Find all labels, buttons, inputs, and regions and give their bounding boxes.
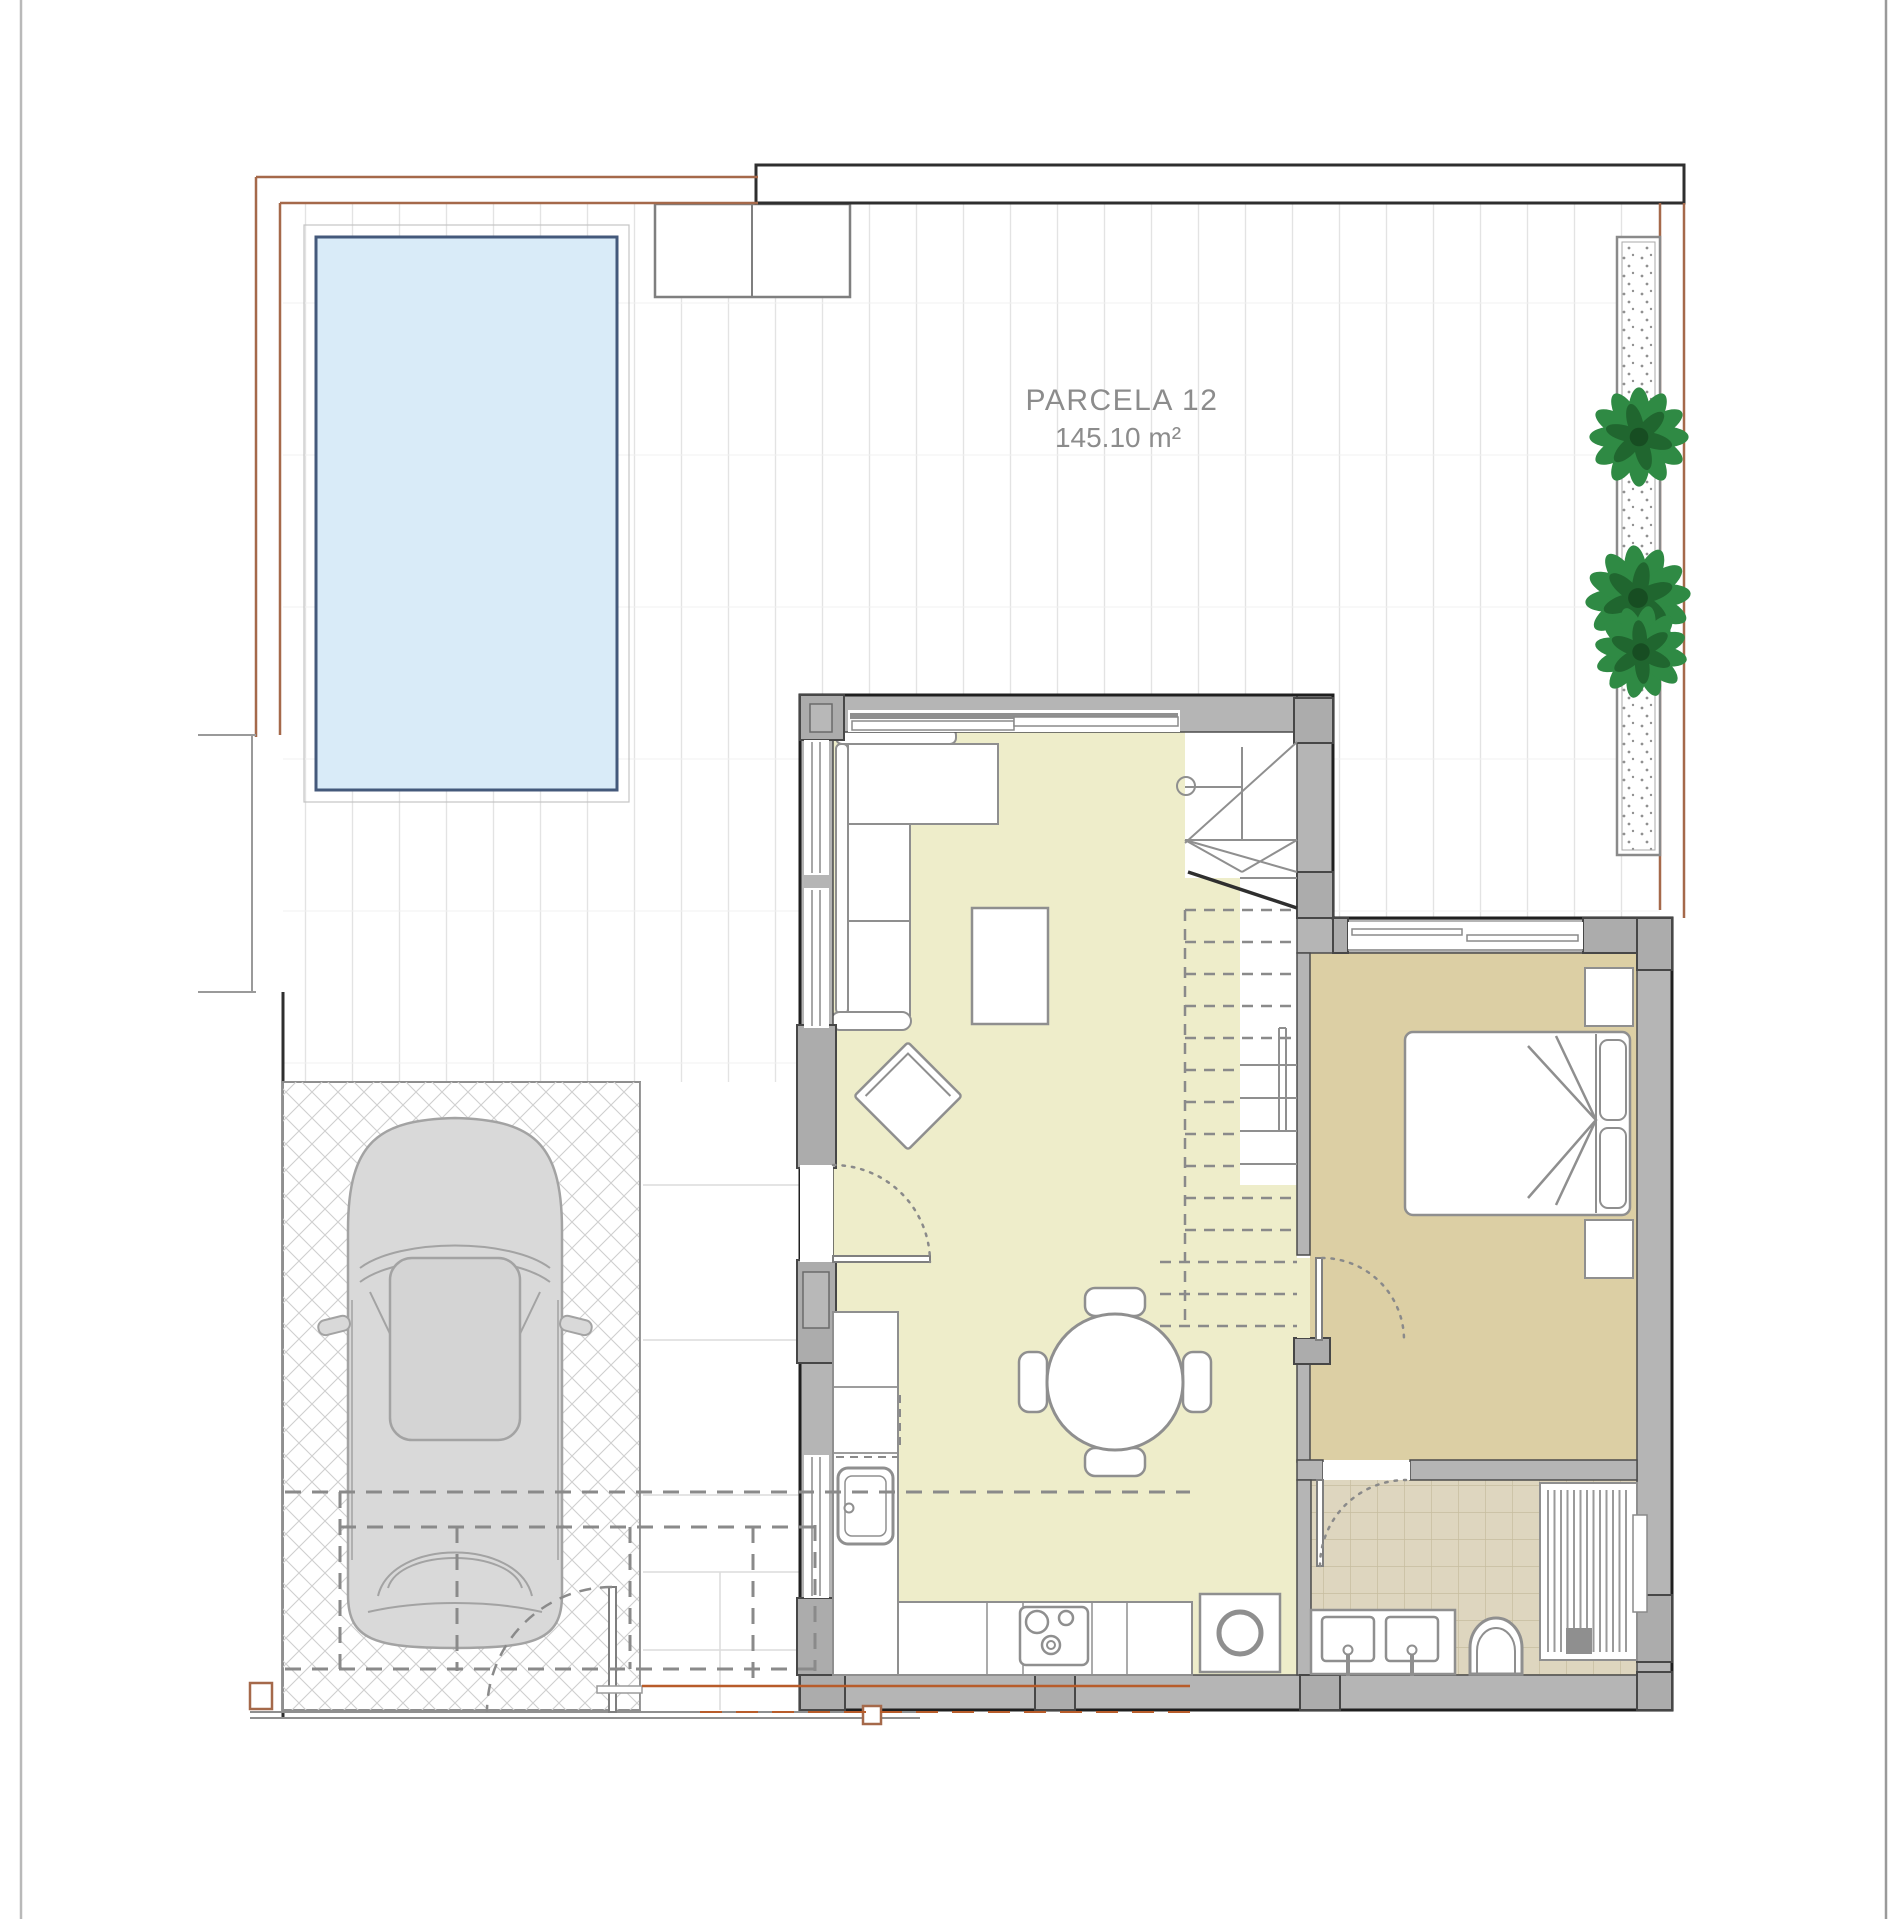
nightstand — [1585, 968, 1633, 1026]
coffee-table — [972, 908, 1048, 1024]
roof-overhang-band — [756, 165, 1684, 203]
stairwell-lower — [1240, 878, 1297, 1185]
sliding-door-top — [848, 710, 1180, 732]
entrance-walk — [640, 1082, 800, 1710]
pool — [304, 225, 629, 802]
floor-plan-drawing: PARCELA 12 145.10 m² — [0, 0, 1902, 1919]
dining-table — [1047, 1314, 1183, 1450]
wall-niche — [1633, 1515, 1647, 1612]
window-bedroom — [1348, 922, 1583, 950]
vanity — [1311, 1610, 1455, 1676]
entry-step — [597, 1686, 642, 1693]
dining-chair — [1085, 1448, 1145, 1476]
terrace-storage-box — [655, 204, 850, 297]
window-left-2 — [804, 888, 829, 1028]
dining-chair — [1019, 1352, 1047, 1412]
parcel-area-label: 145.10 m² — [1055, 422, 1181, 453]
pillow — [1600, 1040, 1626, 1120]
stove — [1020, 1607, 1088, 1665]
kitchen-sink — [838, 1468, 893, 1544]
parcel-label: PARCELA 12 — [1026, 384, 1219, 417]
neighbor-wall-stub — [198, 735, 256, 992]
washing-machine — [1200, 1594, 1280, 1672]
window-left-1 — [804, 740, 829, 875]
shower — [1540, 1483, 1637, 1660]
dining-chair — [1183, 1352, 1211, 1412]
wall-bottom — [800, 1675, 1672, 1710]
car — [317, 1118, 593, 1648]
floor-plan-sheet: PARCELA 12 145.10 m² — [0, 0, 1902, 1919]
pool-water — [316, 237, 617, 790]
nightstand — [1585, 1220, 1633, 1278]
dining-chair — [1085, 1288, 1145, 1316]
wall-bedroom-partition-low — [1297, 1364, 1310, 1462]
wall-bath-top-left — [1297, 1460, 1323, 1480]
wall-bath-left — [1297, 1480, 1311, 1675]
toilet — [1470, 1618, 1522, 1674]
wall-bath-top — [1410, 1460, 1637, 1480]
pillow — [1600, 1128, 1626, 1208]
wall-bedroom-partition — [1297, 953, 1310, 1255]
